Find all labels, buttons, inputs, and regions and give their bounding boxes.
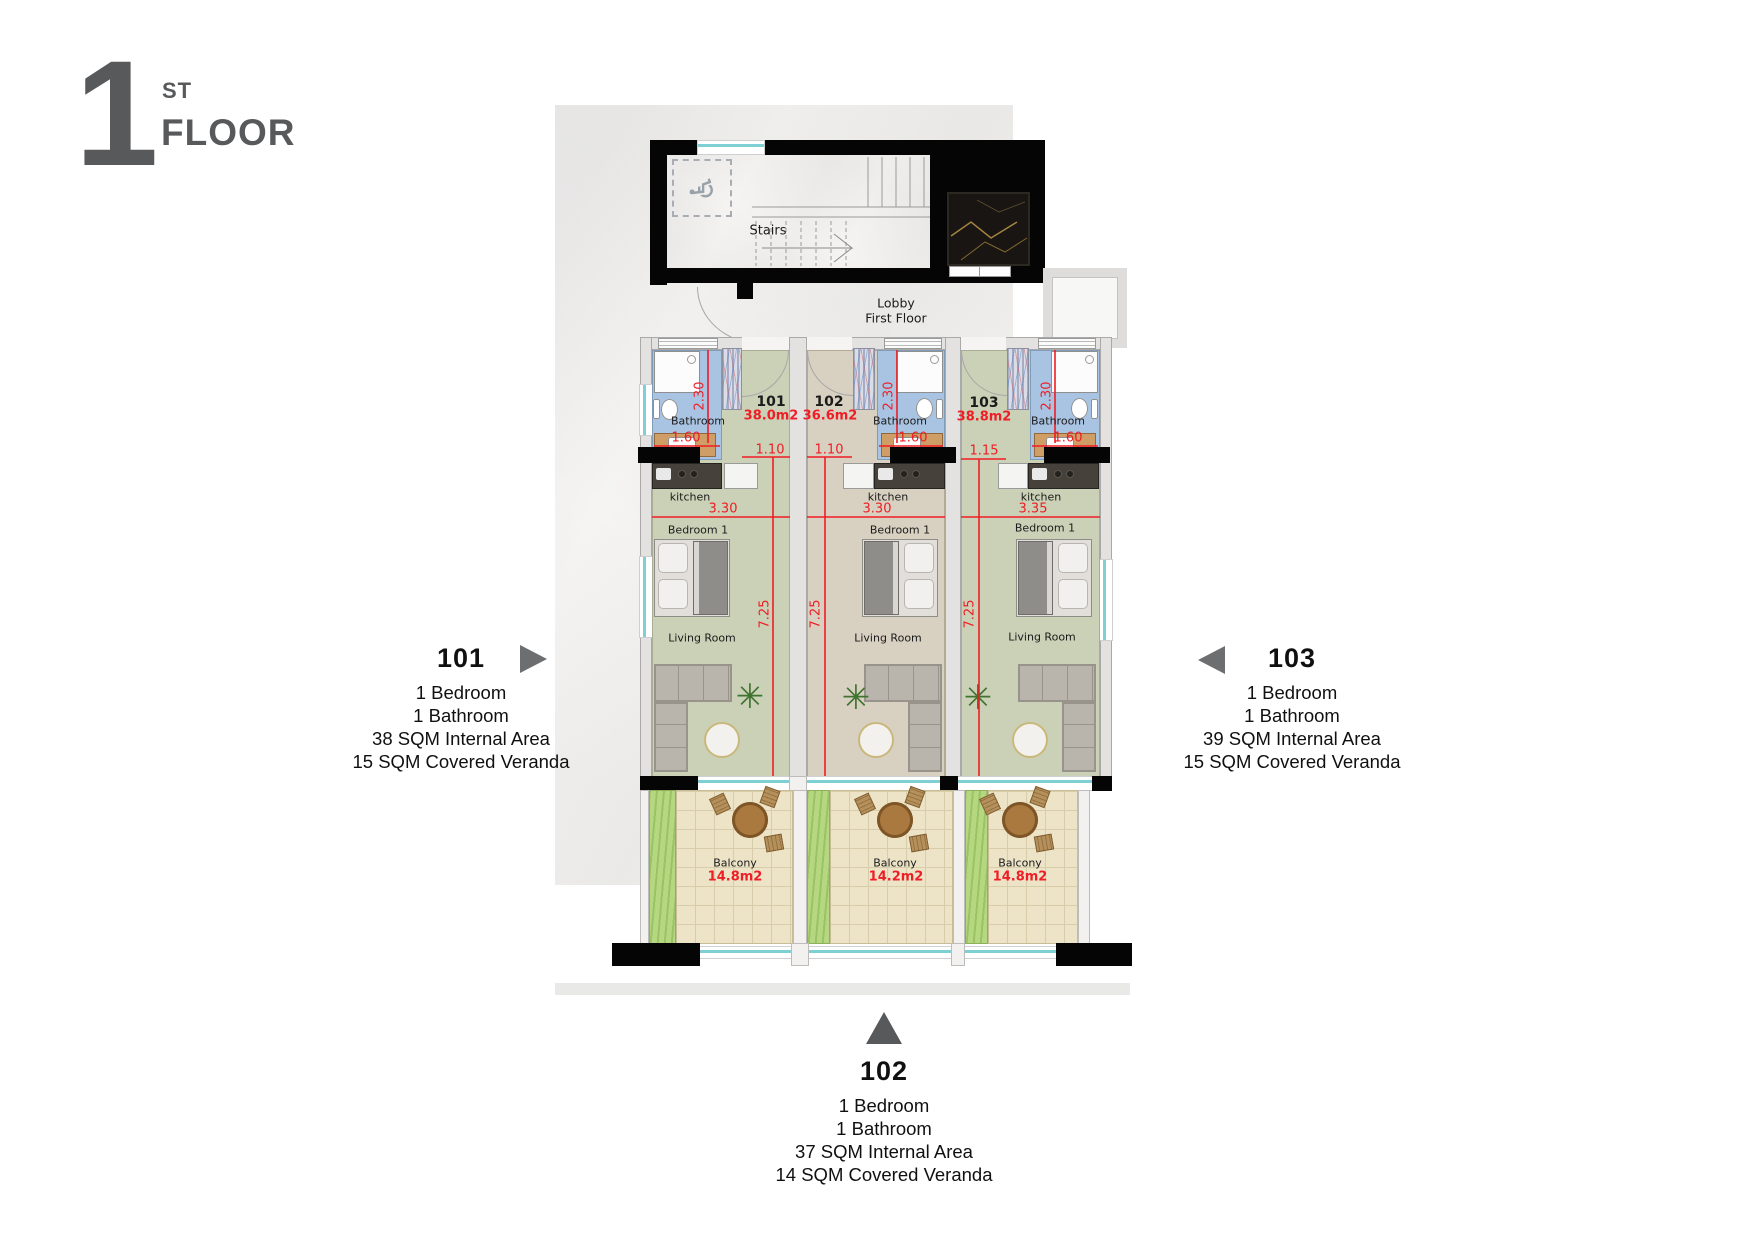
unit-101-kitchen-label: kitchen — [670, 491, 711, 504]
balcony-102-area: 14.2m2 — [869, 870, 924, 885]
unit-103-area: 38.8m2 — [957, 410, 1012, 425]
callout-103-arrow-icon — [1198, 646, 1225, 674]
unit-101-living-label: Living Room — [668, 632, 736, 645]
dim-101-bath-width: 1.60 — [672, 431, 701, 446]
unit-102-area: 36.6m2 — [803, 409, 858, 424]
callout-103-line: 1 Bedroom — [1102, 681, 1482, 704]
balcony-103-label: Balcony — [998, 857, 1042, 870]
unit-102-living-label: Living Room — [854, 632, 922, 645]
callout-102-arrow-icon — [866, 1012, 902, 1044]
callout-103-line: 15 SQM Covered Veranda — [1102, 750, 1482, 773]
callout-103-line: 1 Bathroom — [1102, 704, 1482, 727]
dim-101-entry: 1.10 — [756, 443, 785, 458]
callout-101-line: 15 SQM Covered Veranda — [271, 750, 651, 773]
callout-102-id: 102 — [684, 1056, 1084, 1087]
callout-unit-103: 103 1 Bedroom 1 Bathroom 39 SQM Internal… — [1102, 643, 1482, 773]
callout-101-line: 1 Bathroom — [271, 704, 651, 727]
callout-101-id: 101 — [271, 643, 651, 674]
callout-102-line: 1 Bathroom — [684, 1117, 1084, 1140]
dim-103-entry: 1.15 — [970, 444, 999, 459]
dim-101-length: 7.25 — [758, 600, 773, 629]
callout-102-line: 14 SQM Covered Veranda — [684, 1163, 1084, 1186]
dim-101-bath-depth: 2.30 — [693, 382, 708, 411]
dim-102-bath-width: 1.60 — [899, 431, 928, 446]
unit-101-bathroom-label: Bathroom — [671, 415, 725, 428]
callout-102-line: 1 Bedroom — [684, 1094, 1084, 1117]
unit-103-living-label: Living Room — [1008, 631, 1076, 644]
dim-103-length: 7.25 — [963, 600, 978, 629]
callout-101-line: 38 SQM Internal Area — [271, 727, 651, 750]
dim-101-width: 3.30 — [709, 502, 738, 517]
unit-103-bathroom-label: Bathroom — [1031, 415, 1085, 428]
dim-103-bath-depth: 2.30 — [1040, 382, 1055, 411]
balcony-103-area: 14.8m2 — [993, 870, 1048, 885]
callout-103-id: 103 — [1102, 643, 1482, 674]
floor-number: 1 — [75, 38, 158, 188]
dim-103-bath-width: 1.60 — [1054, 431, 1083, 446]
unit-101-area: 38.0m2 — [744, 409, 799, 424]
dimension-lines — [555, 100, 1155, 1000]
floor-word: FLOOR — [161, 112, 295, 154]
callout-103-line: 39 SQM Internal Area — [1102, 727, 1482, 750]
floor-ordinal: ST — [162, 78, 192, 104]
callout-101-arrow-icon — [520, 645, 547, 673]
balcony-102-label: Balcony — [873, 857, 917, 870]
unit-102-bedroom-label: Bedroom 1 — [870, 524, 930, 537]
dim-102-bath-depth: 2.30 — [882, 382, 897, 411]
dim-102-width: 3.30 — [863, 502, 892, 517]
unit-101-bedroom-label: Bedroom 1 — [668, 524, 728, 537]
unit-103-bedroom-label: Bedroom 1 — [1015, 522, 1075, 535]
dim-103-width: 3.35 — [1019, 502, 1048, 517]
balcony-101-area: 14.8m2 — [708, 870, 763, 885]
callout-unit-102: 102 1 Bedroom 1 Bathroom 37 SQM Internal… — [684, 1056, 1084, 1186]
balcony-101-label: Balcony — [713, 857, 757, 870]
callout-102-line: 37 SQM Internal Area — [684, 1140, 1084, 1163]
callout-101-line: 1 Bedroom — [271, 681, 651, 704]
dim-102-length: 7.25 — [809, 600, 824, 629]
callout-unit-101: 101 1 Bedroom 1 Bathroom 38 SQM Internal… — [271, 643, 651, 773]
unit-102-bathroom-label: Bathroom — [873, 415, 927, 428]
dim-102-entry: 1.10 — [815, 443, 844, 458]
floorplan-page: 1 ST FLOOR ♿ S — [0, 0, 1754, 1240]
